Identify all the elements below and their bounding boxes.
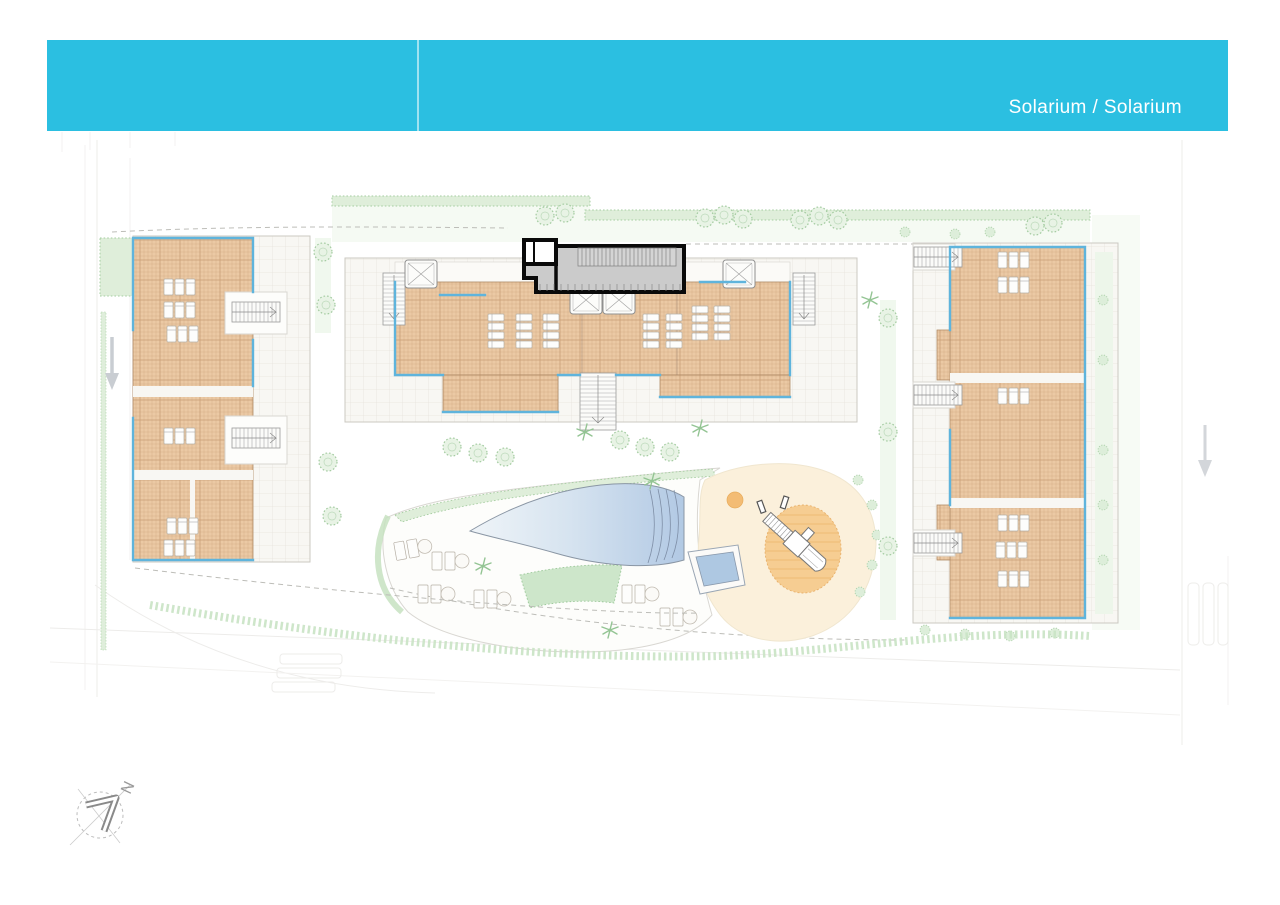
left-road — [100, 238, 133, 650]
down-arrow-icon — [1198, 425, 1212, 477]
header-bar: Solarium / Solarium — [47, 40, 1228, 131]
site-plan: N — [0, 0, 1280, 905]
page-title: Solarium / Solarium — [1009, 97, 1182, 119]
courtyard-trees-left — [314, 238, 341, 525]
right-building — [879, 243, 1118, 641]
down-arrow-icon — [105, 337, 119, 390]
compass: N — [70, 779, 139, 845]
left-building — [133, 236, 310, 562]
brochure-page: N Solarium / Solarium — [0, 0, 1280, 905]
header-divider — [417, 40, 419, 131]
playground — [688, 464, 882, 641]
right-road — [1198, 425, 1212, 477]
highlighted-unit — [524, 240, 684, 292]
stairs-center — [580, 373, 616, 430]
